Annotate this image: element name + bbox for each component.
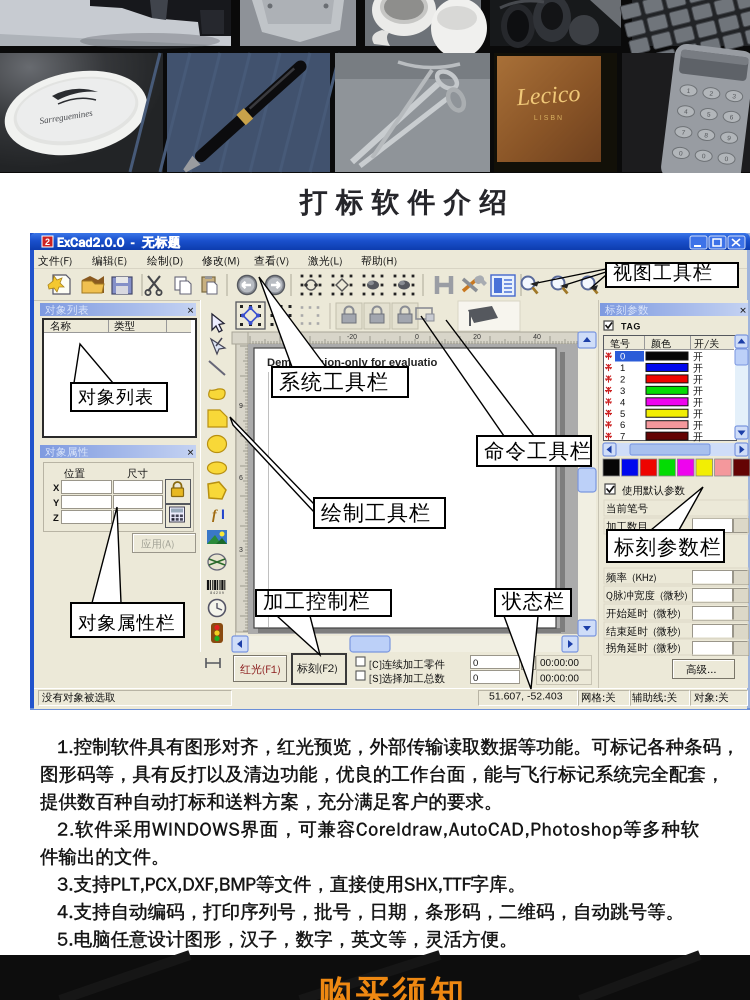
svg-text:51.607, -52.403: 51.607, -52.403 bbox=[489, 691, 563, 703]
svg-text:4: 4 bbox=[620, 397, 625, 408]
svg-text:7: 7 bbox=[620, 432, 625, 443]
svg-text:-20: -20 bbox=[347, 334, 357, 341]
svg-text:6: 6 bbox=[239, 475, 243, 482]
svg-text:1: 1 bbox=[620, 363, 625, 374]
svg-text:0: 0 bbox=[473, 658, 478, 669]
svg-text:I: I bbox=[221, 506, 225, 522]
svg-text:✕: ✕ bbox=[187, 306, 195, 316]
svg-text:f: f bbox=[212, 508, 218, 523]
svg-text:00:00:00: 00:00:00 bbox=[540, 674, 579, 685]
svg-text:✕: ✕ bbox=[739, 306, 747, 316]
svg-text:2: 2 bbox=[620, 374, 625, 385]
svg-text:3: 3 bbox=[620, 386, 625, 397]
svg-text:2: 2 bbox=[45, 237, 50, 247]
svg-text:Z: Z bbox=[53, 513, 59, 524]
svg-text:9: 9 bbox=[239, 403, 243, 410]
svg-text:40: 40 bbox=[533, 334, 541, 341]
svg-text:20: 20 bbox=[473, 334, 481, 341]
svg-text:5: 5 bbox=[620, 409, 625, 420]
svg-text:3: 3 bbox=[239, 547, 243, 554]
svg-text:00:00:00: 00:00:00 bbox=[540, 658, 579, 669]
svg-text:TAG: TAG bbox=[621, 322, 641, 332]
svg-text:✕: ✕ bbox=[187, 448, 195, 458]
svg-text:0: 0 bbox=[415, 334, 419, 341]
svg-text:0: 0 bbox=[620, 352, 625, 363]
svg-text:0: 0 bbox=[473, 673, 478, 684]
svg-text:Y: Y bbox=[53, 498, 60, 509]
svg-text:8 4 2 0 9: 8 4 2 0 9 bbox=[210, 591, 224, 595]
svg-text:6: 6 bbox=[620, 420, 625, 431]
svg-text:X: X bbox=[53, 483, 60, 494]
